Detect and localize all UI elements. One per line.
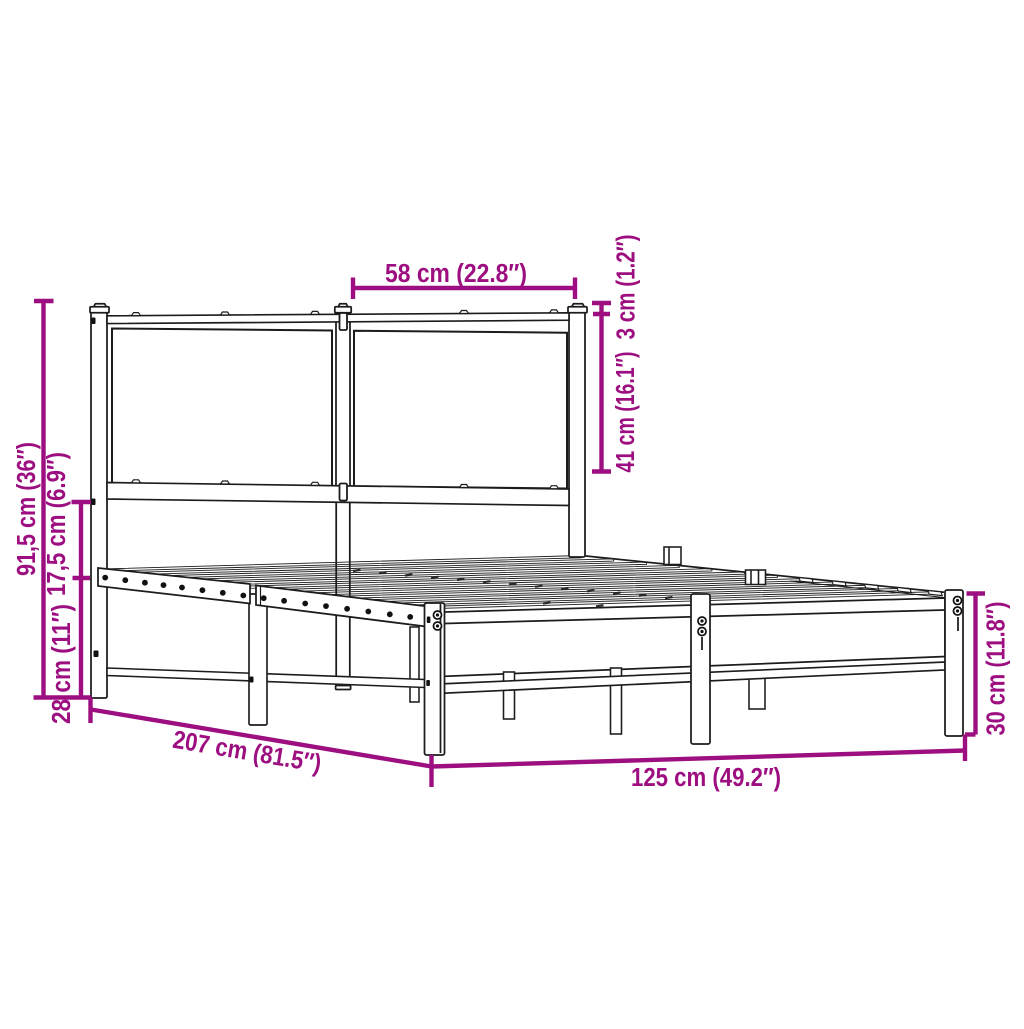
- svg-text:58 cm (22.8″): 58 cm (22.8″): [385, 260, 527, 288]
- svg-text:41 cm (16.1″): 41 cm (16.1″): [612, 352, 640, 473]
- svg-text:125 cm (49.2″): 125 cm (49.2″): [631, 764, 781, 792]
- svg-text:28 cm (11″): 28 cm (11″): [48, 604, 76, 724]
- svg-text:3 cm (1.2″): 3 cm (1.2″): [613, 235, 641, 340]
- svg-text:17,5 cm (6.9″): 17,5 cm (6.9″): [43, 452, 71, 596]
- svg-text:91,5 cm (36″): 91,5 cm (36″): [13, 442, 41, 576]
- svg-text:30 cm (11.8″): 30 cm (11.8″): [983, 602, 1011, 736]
